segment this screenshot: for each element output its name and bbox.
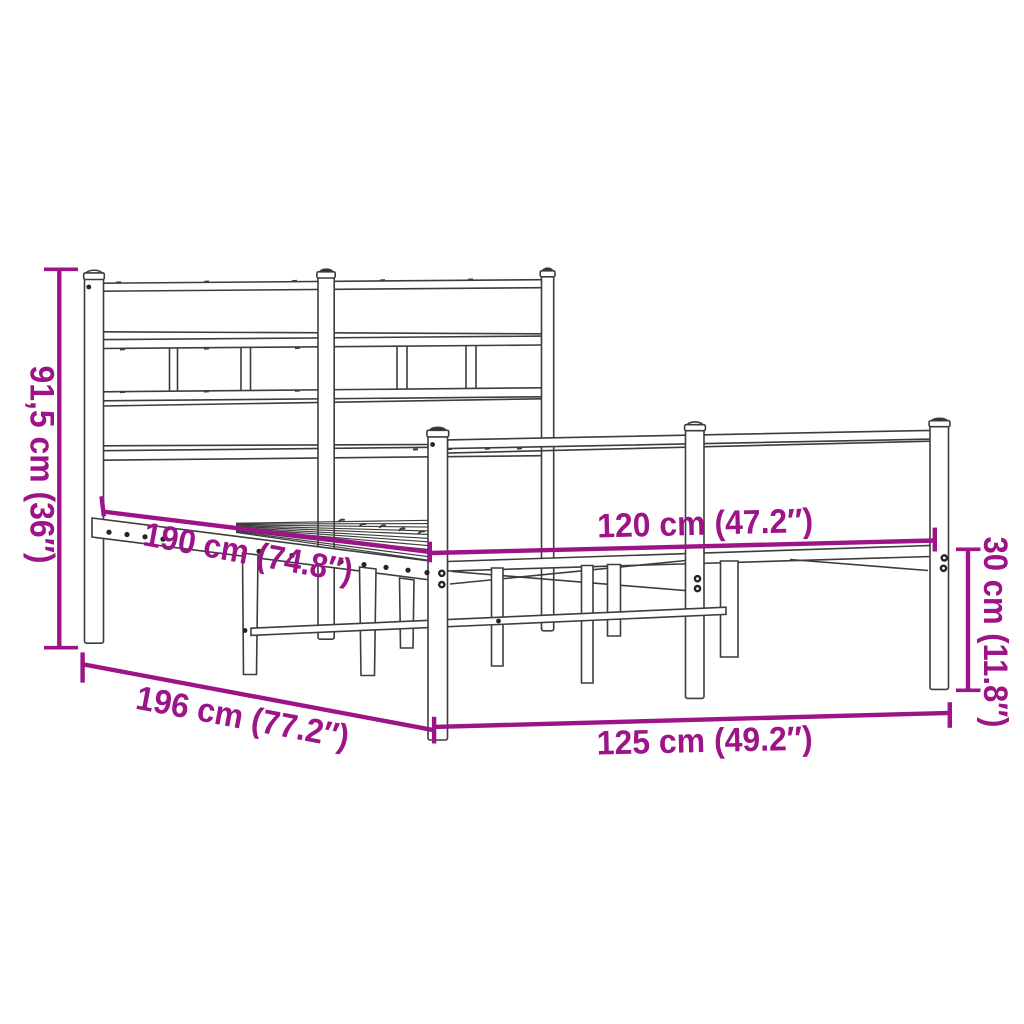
svg-text:30 cm (11.8″): 30 cm (11.8″) bbox=[976, 537, 1014, 728]
svg-text:120 cm (47.2″): 120 cm (47.2″) bbox=[597, 502, 814, 546]
svg-text:125 cm (49.2″): 125 cm (49.2″) bbox=[596, 720, 813, 763]
svg-text:91,5 cm (36″): 91,5 cm (36″) bbox=[23, 366, 61, 564]
